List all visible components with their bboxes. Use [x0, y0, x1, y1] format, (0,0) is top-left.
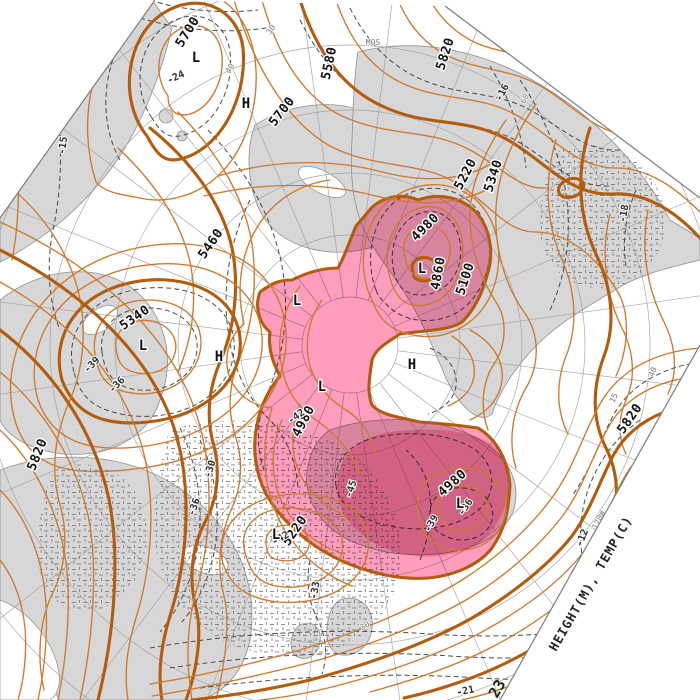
pressure-center-label: L [293, 293, 301, 309]
pressure-center-label: L [272, 527, 280, 543]
weather-map-page: 5700570055805820522053404980486051005460… [0, 0, 700, 700]
weather-map: 5700570055805820522053404980486051005460… [0, 0, 700, 700]
pressure-center-label: H [408, 357, 416, 373]
pressure-center-label: H [215, 349, 223, 365]
pressure-center-label: L [139, 338, 147, 354]
pressure-center-label: L [456, 496, 464, 512]
grid-label: MOS [366, 38, 381, 47]
pressure-center-label: H [242, 96, 250, 112]
pressure-center-label: L [192, 50, 200, 66]
pressure-center-label: L [318, 379, 326, 395]
pressure-center-label: L [418, 261, 426, 277]
